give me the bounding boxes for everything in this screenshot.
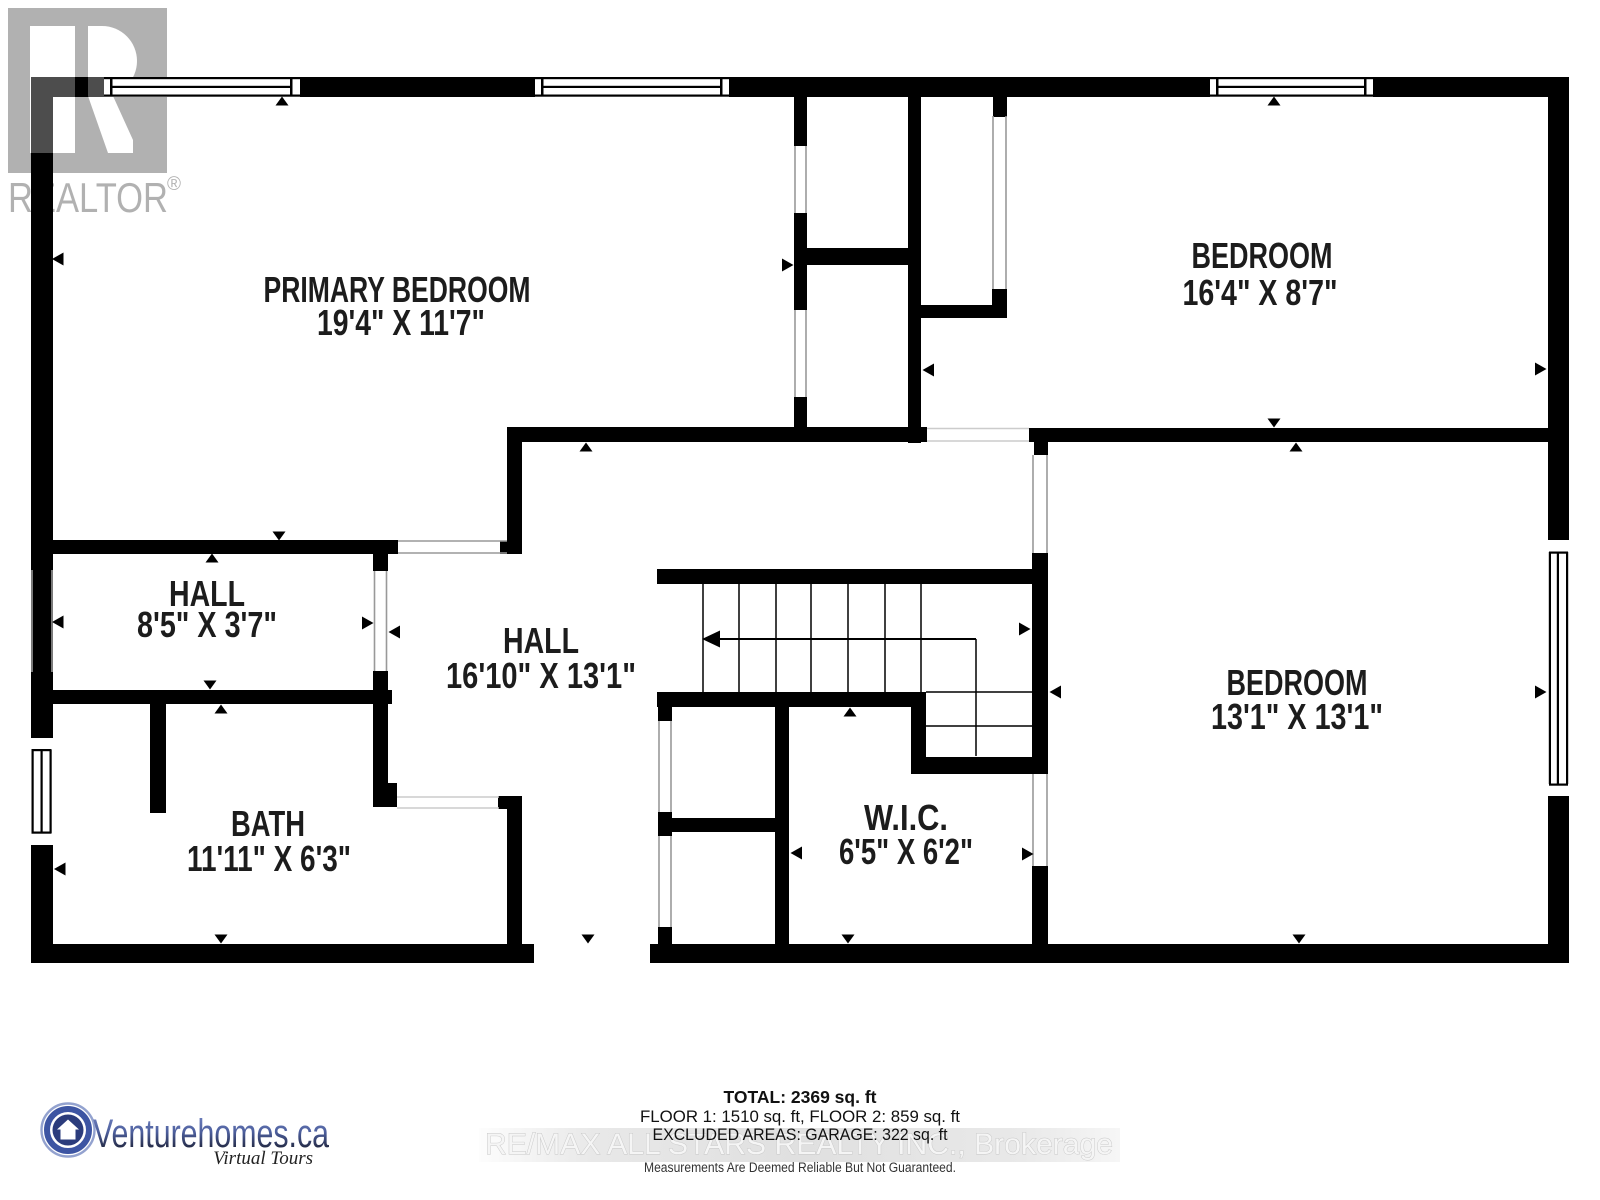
svg-text:REALTOR: REALTOR [8, 174, 168, 221]
svg-text:Measurements Are Deemed Reliab: Measurements Are Deemed Reliable But Not… [644, 1160, 956, 1175]
svg-text:8'5" X 3'7": 8'5" X 3'7" [137, 604, 277, 645]
svg-text:11'11" X 6'3": 11'11" X 6'3" [187, 838, 351, 879]
svg-text:EXCLUDED AREAS: GARAGE: 322 sq: EXCLUDED AREAS: GARAGE: 322 sq. ft [653, 1125, 948, 1144]
svg-text:13'1" X 13'1": 13'1" X 13'1" [1211, 696, 1383, 737]
svg-text:16'4" X 8'7": 16'4" X 8'7" [1183, 272, 1338, 313]
svg-text:TOTAL: 2369 sq. ft: TOTAL: 2369 sq. ft [724, 1087, 877, 1107]
svg-text:FLOOR 1: 1510 sq. ft, FLOOR 2:: FLOOR 1: 1510 sq. ft, FLOOR 2: 859 sq. f… [640, 1107, 960, 1126]
svg-text:BEDROOM: BEDROOM [1192, 235, 1333, 276]
svg-text:®: ® [167, 174, 181, 195]
svg-text:19'4" X 11'7": 19'4" X 11'7" [317, 302, 485, 343]
svg-text:16'10" X 13'1": 16'10" X 13'1" [446, 655, 636, 696]
svg-text:6'5" X 6'2": 6'5" X 6'2" [839, 831, 973, 872]
svg-text:Virtual Tours: Virtual Tours [213, 1148, 313, 1169]
